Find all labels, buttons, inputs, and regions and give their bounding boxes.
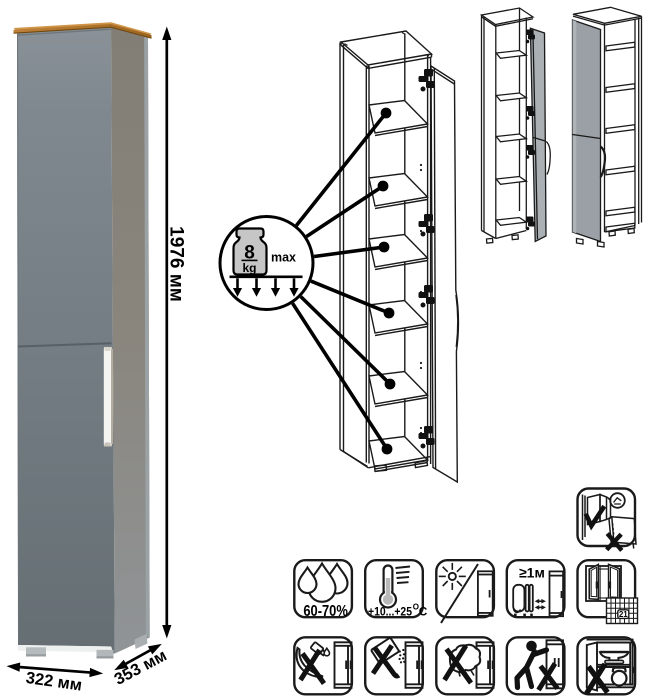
- svg-text:≥1м: ≥1м: [519, 565, 545, 581]
- svg-text:kg: kg: [242, 261, 256, 275]
- svg-text:21: 21: [619, 610, 628, 619]
- svg-text:60-70%: 60-70%: [303, 603, 348, 620]
- svg-text:C: C: [419, 604, 428, 618]
- svg-text:1976 мм: 1976 мм: [165, 226, 186, 302]
- svg-text:322 мм: 322 мм: [25, 669, 83, 695]
- svg-text:max: max: [271, 251, 296, 265]
- svg-text:+10...+25: +10...+25: [368, 604, 412, 618]
- svg-text:353 мм: 353 мм: [111, 646, 169, 688]
